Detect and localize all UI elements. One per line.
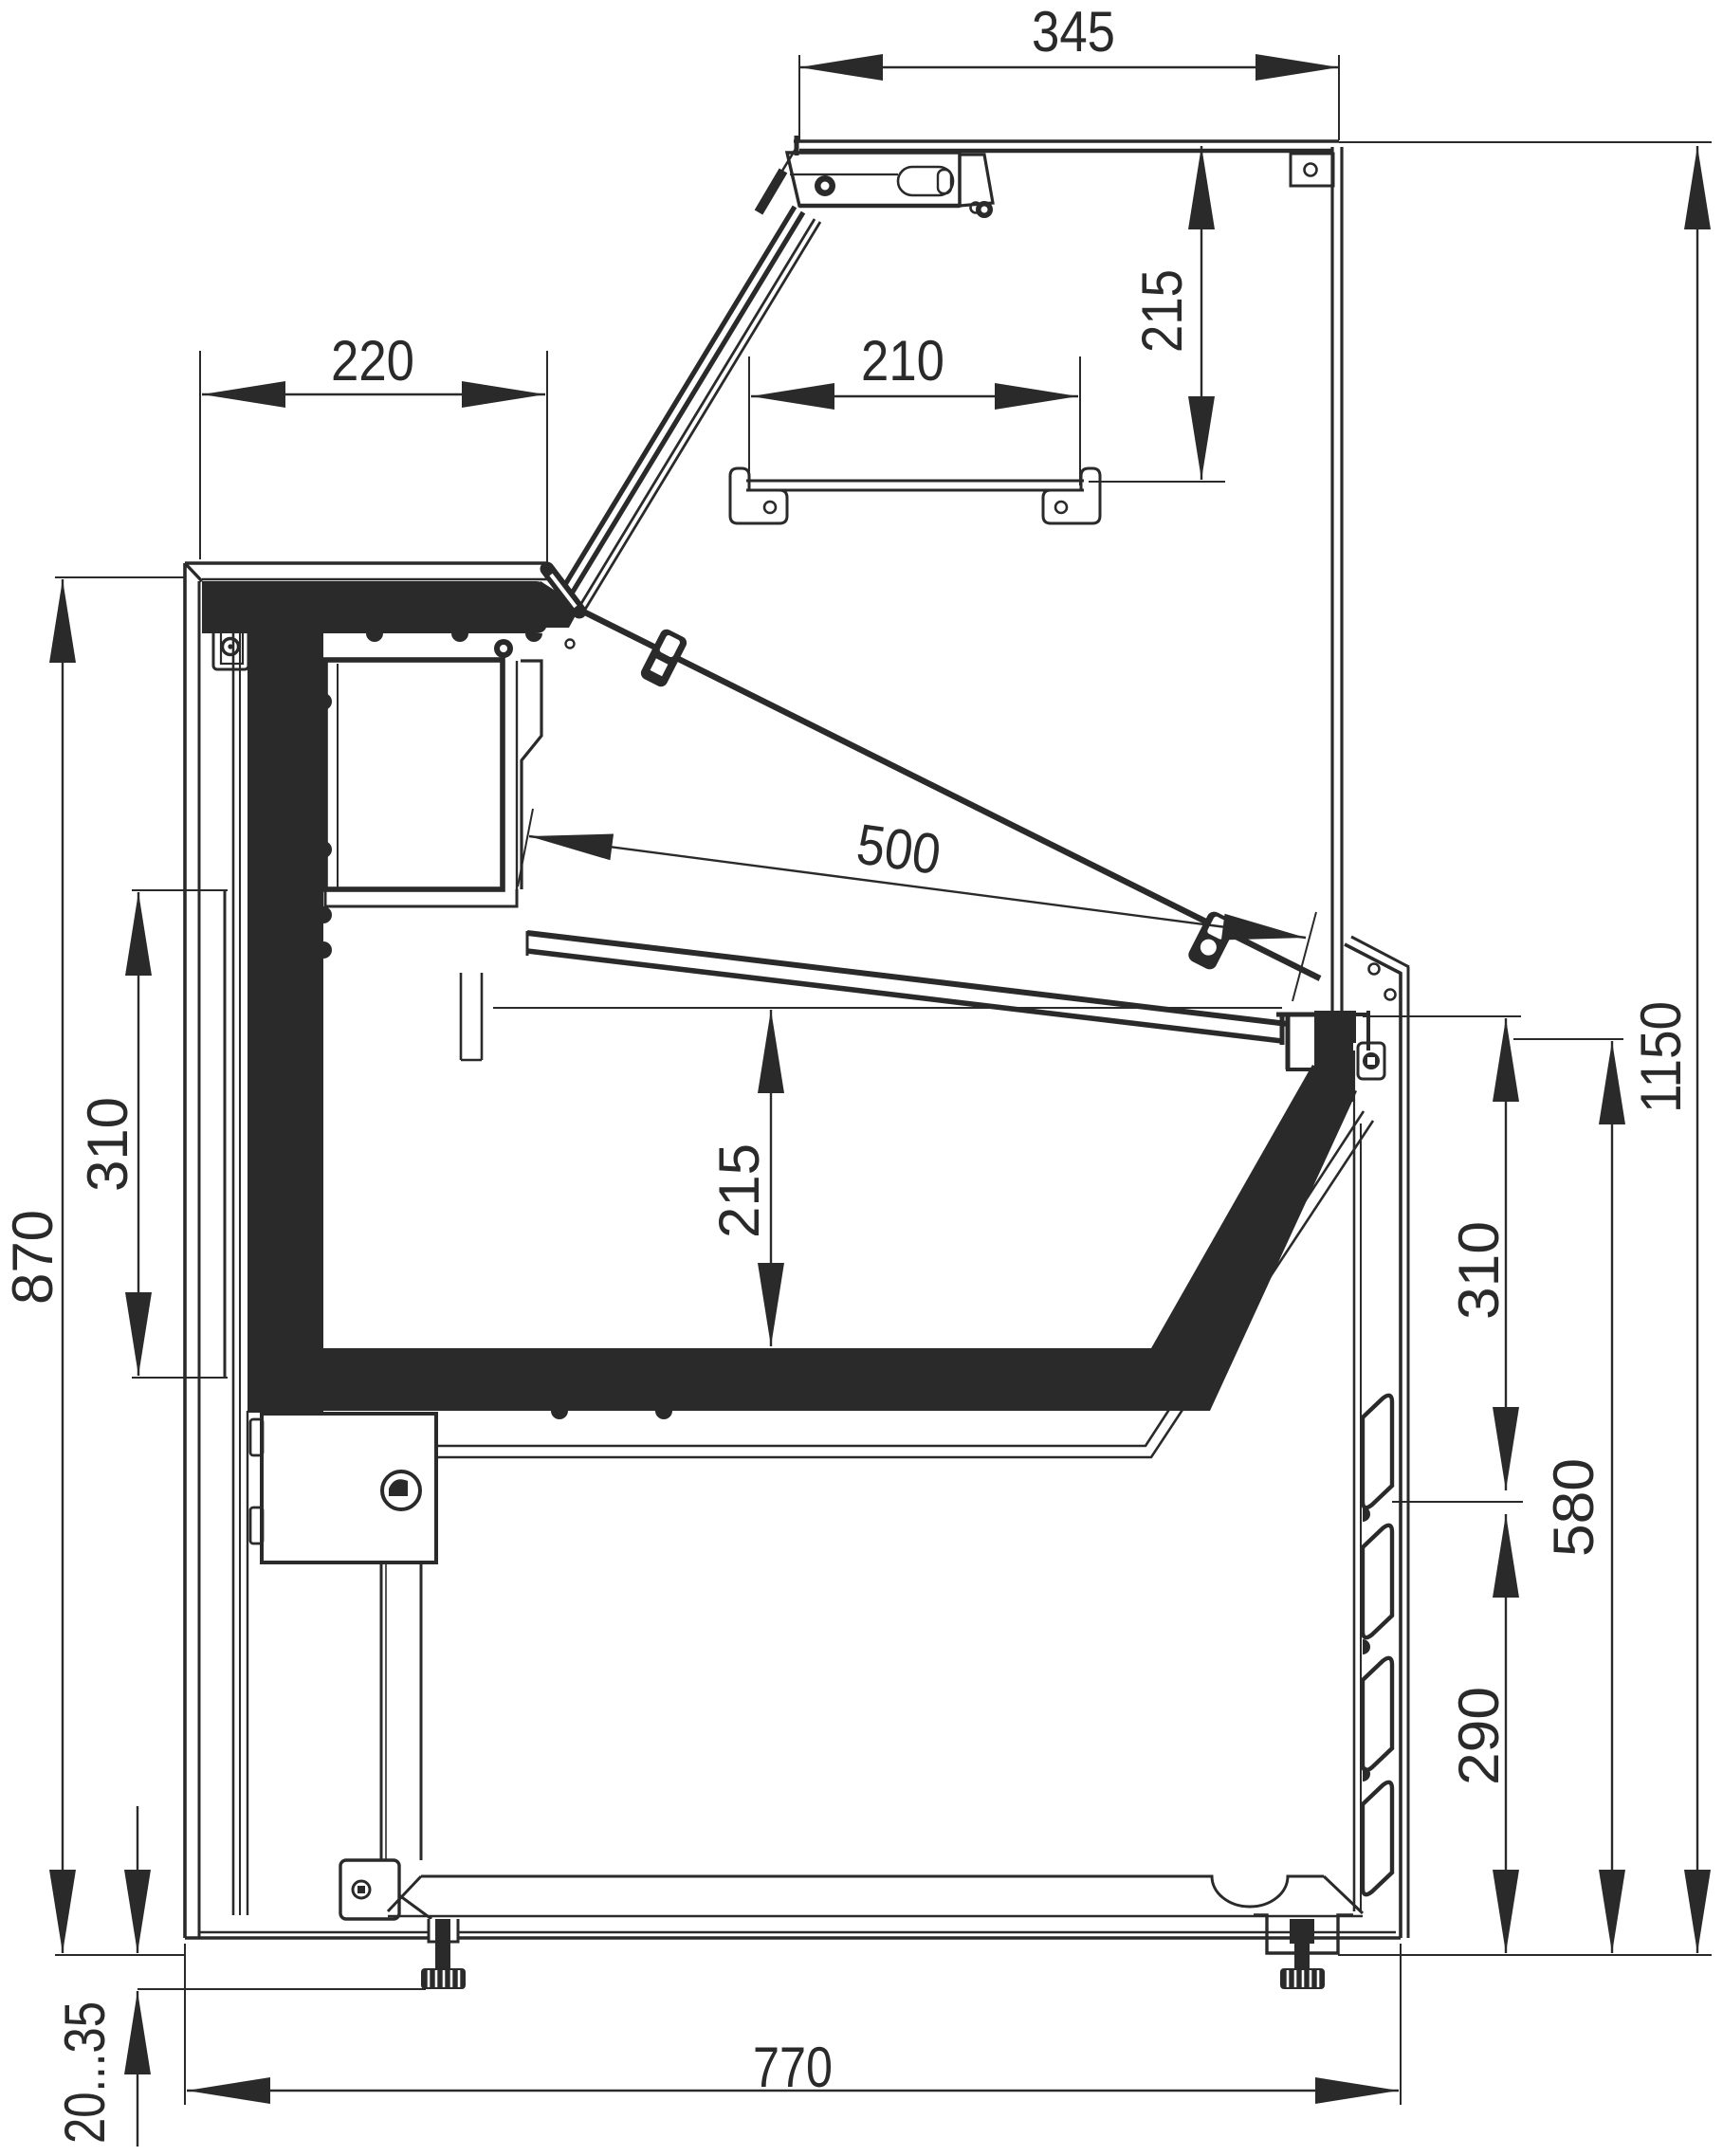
svg-text:310: 310: [76, 1097, 139, 1192]
svg-text:870: 870: [1, 1210, 64, 1305]
svg-text:770: 770: [753, 2036, 833, 2099]
svg-text:210: 210: [861, 329, 944, 393]
svg-text:220: 220: [331, 329, 414, 393]
svg-text:215: 215: [1130, 269, 1194, 353]
svg-text:20...35: 20...35: [53, 2001, 117, 2144]
svg-text:290: 290: [1447, 1687, 1511, 1785]
svg-text:580: 580: [1542, 1458, 1605, 1557]
svg-text:215: 215: [707, 1143, 771, 1238]
svg-text:310: 310: [1447, 1221, 1511, 1320]
svg-text:345: 345: [1032, 0, 1115, 64]
svg-text:500: 500: [853, 812, 944, 886]
svg-text:1150: 1150: [1629, 1001, 1693, 1113]
